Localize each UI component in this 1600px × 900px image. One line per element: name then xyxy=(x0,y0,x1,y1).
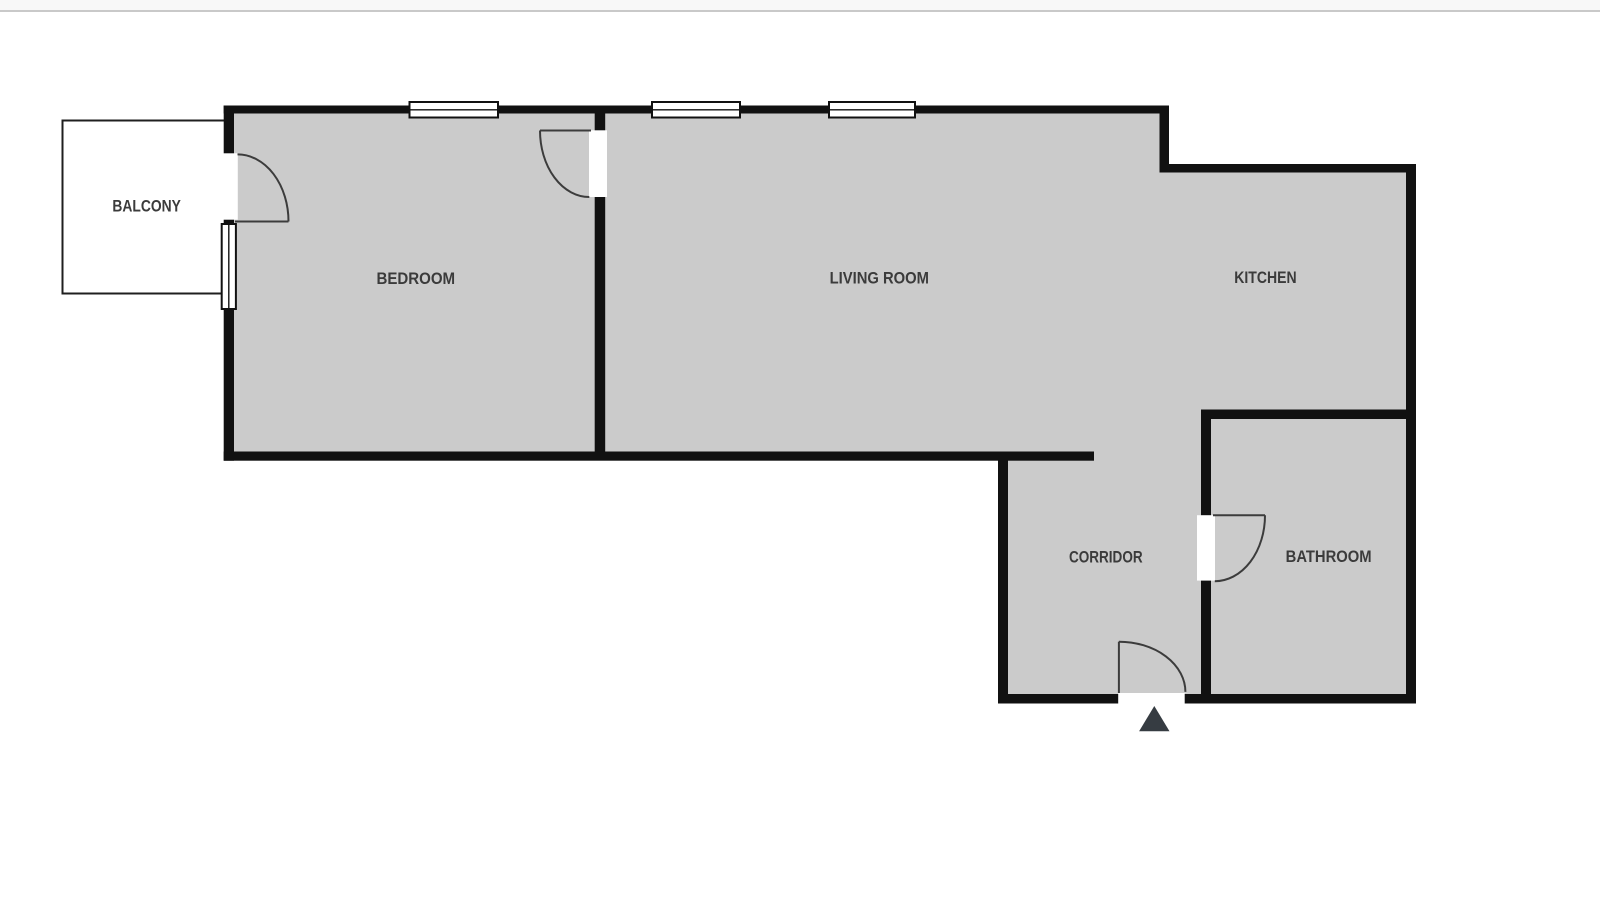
svg-text:BEDROOM: BEDROOM xyxy=(376,269,455,288)
svg-text:BATHROOM: BATHROOM xyxy=(1286,548,1372,566)
svg-text:LIVING ROOM: LIVING ROOM xyxy=(830,270,929,288)
svg-text:KITCHEN: KITCHEN xyxy=(1234,269,1296,288)
svg-text:BALCONY: BALCONY xyxy=(112,197,181,216)
svg-text:CORRIDOR: CORRIDOR xyxy=(1069,548,1143,567)
